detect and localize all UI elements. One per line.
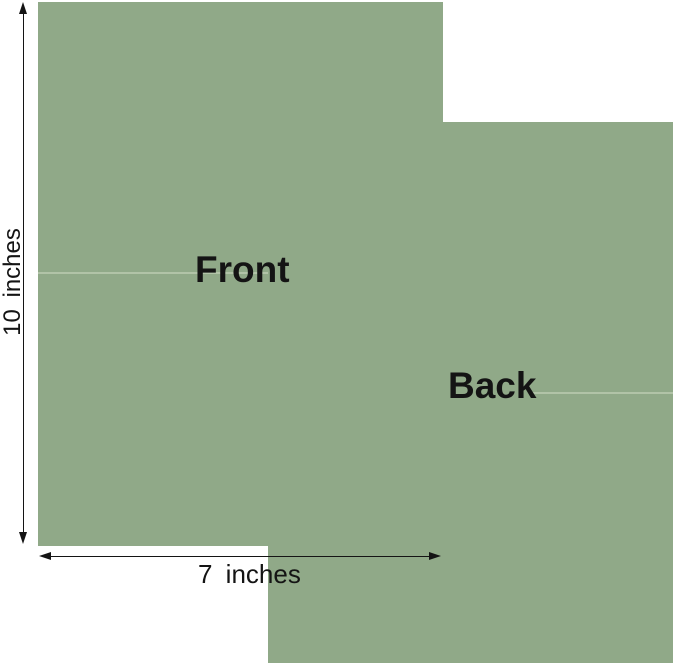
width-dimension-line [45,556,435,557]
arrowhead-up-icon [19,2,27,14]
height-dimension-label: 10 inches [0,227,23,337]
arrowhead-down-icon [19,532,27,544]
product-dimension-diagram: Front Back 10 inches 7 inches [0,0,679,669]
width-dimension-label: 7 inches [198,559,301,590]
front-sheet-label: Front [195,251,290,288]
back-sheet-label: Back [448,367,536,404]
back-sheet-crease [530,392,673,394]
arrowhead-left-icon [39,552,51,560]
arrowhead-right-icon [429,552,441,560]
